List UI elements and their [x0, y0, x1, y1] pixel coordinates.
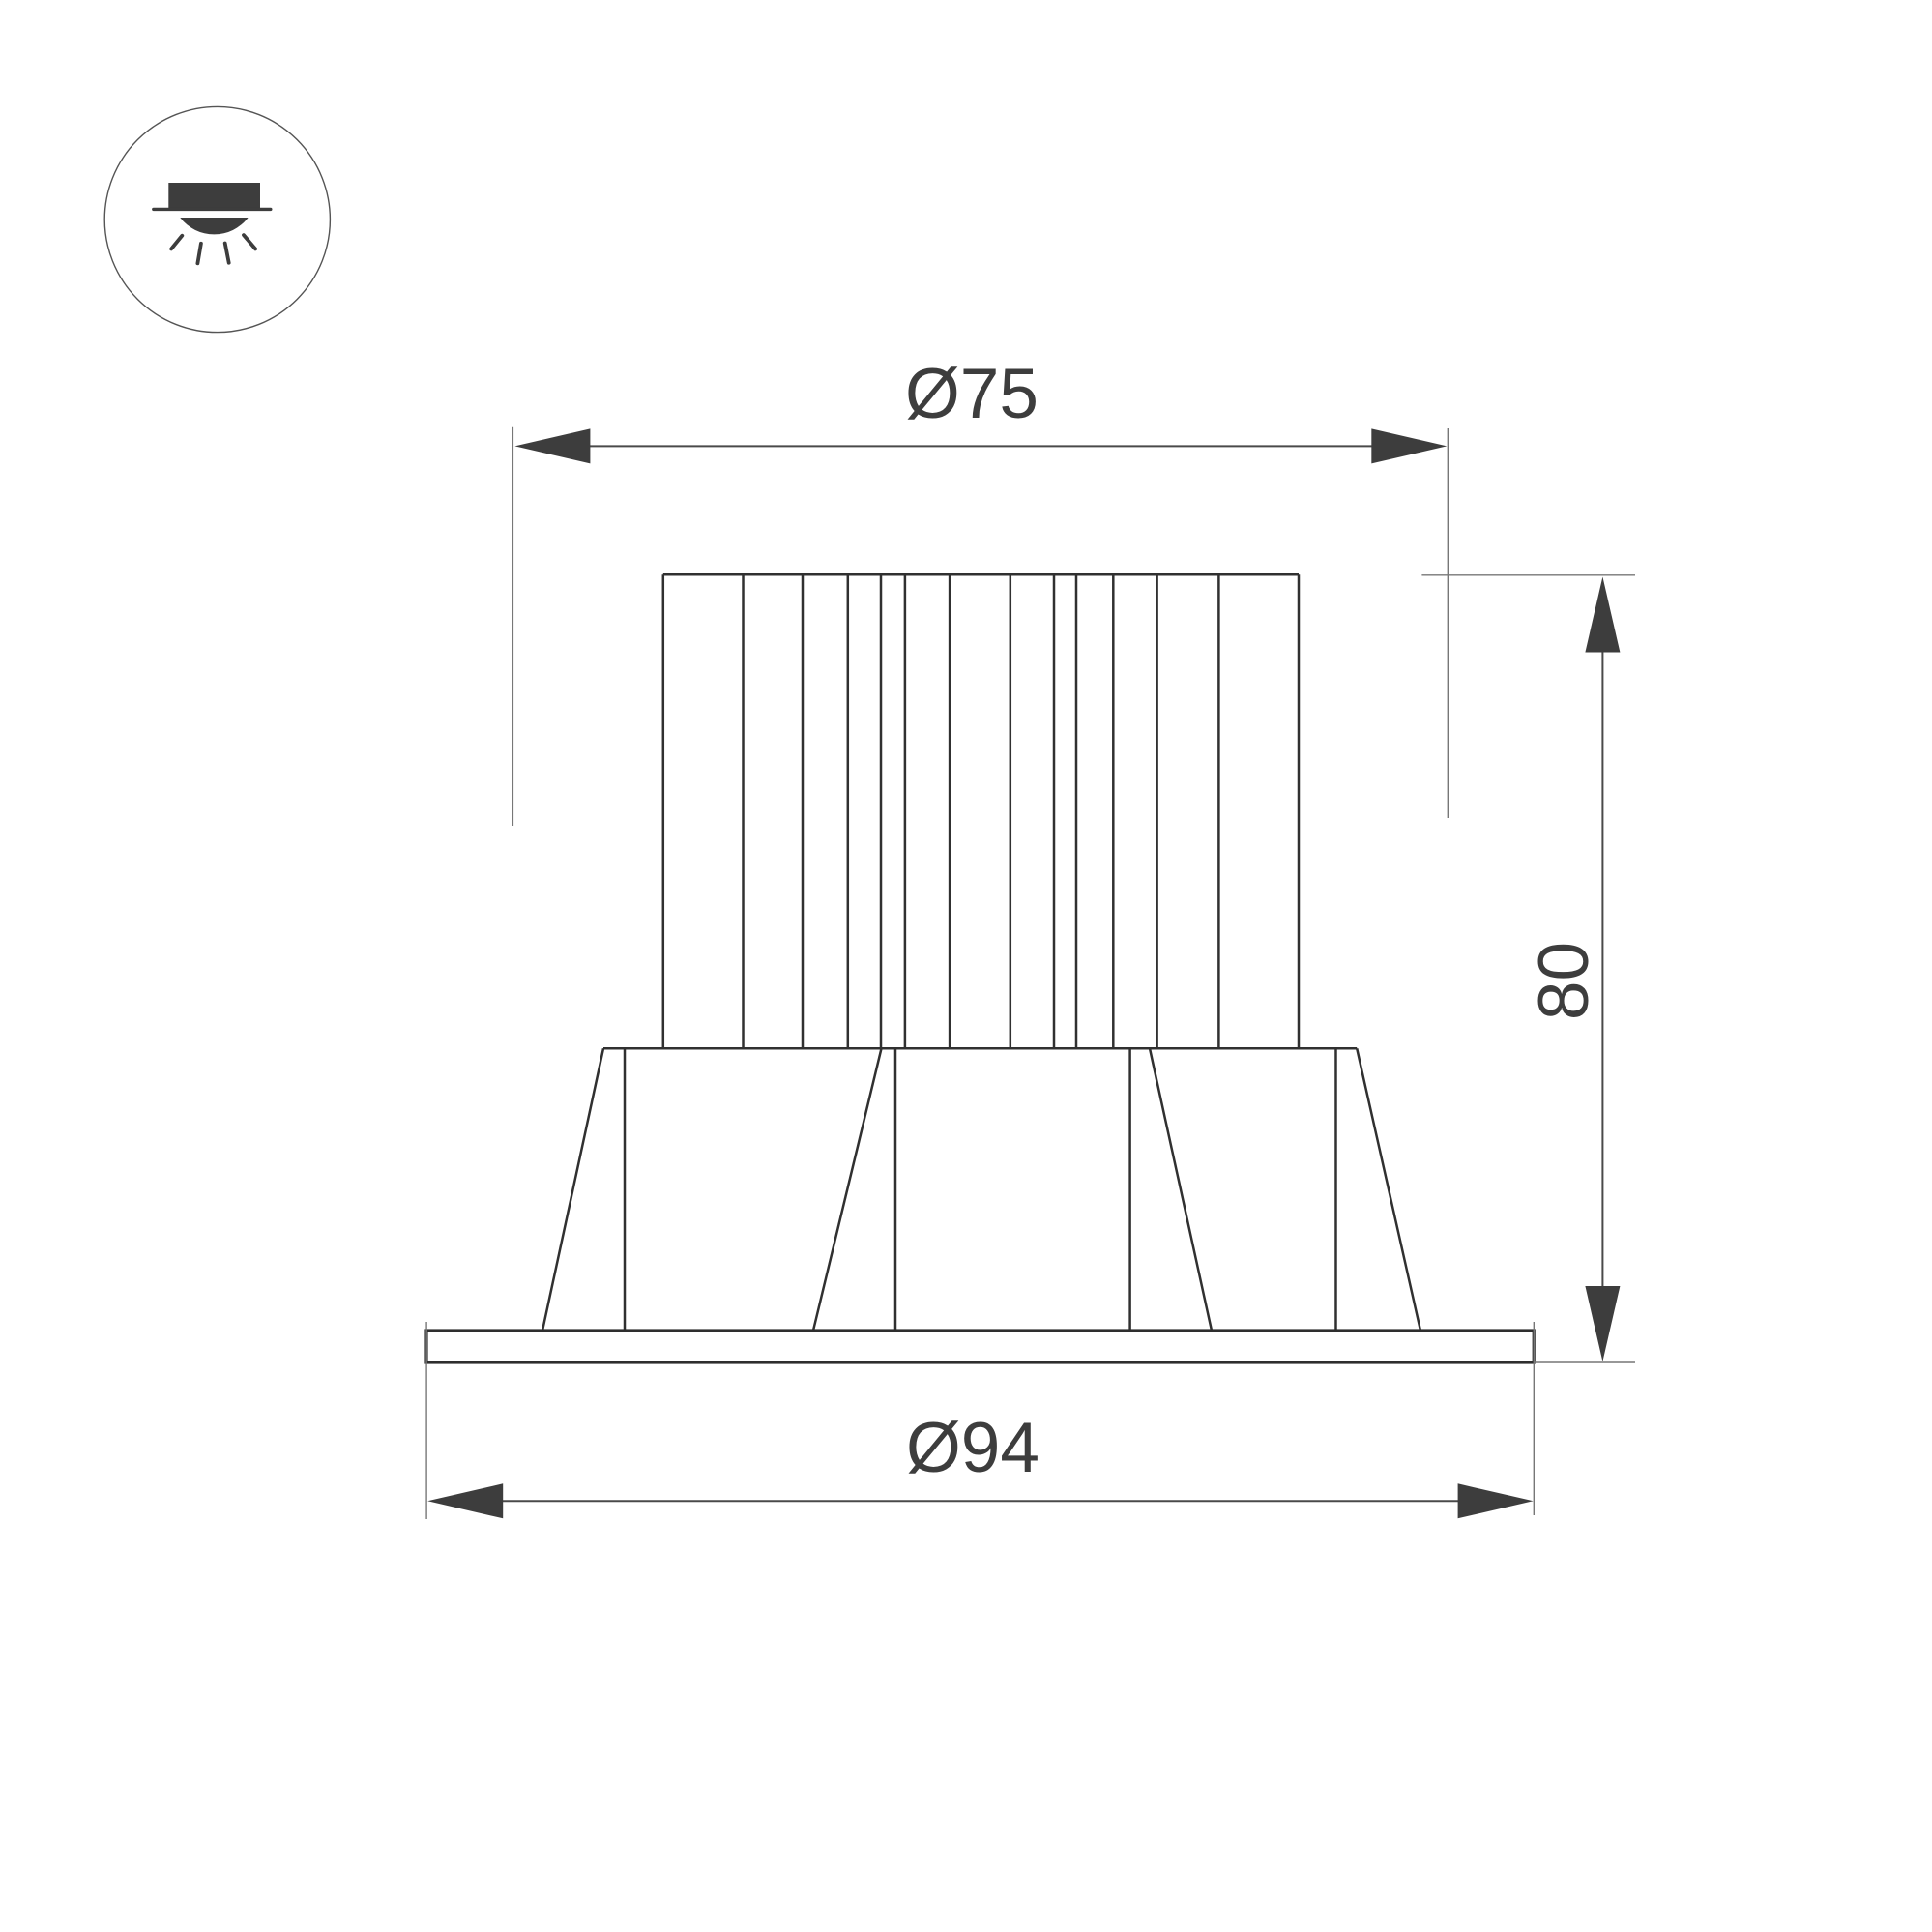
svg-text:Ø75: Ø75	[905, 355, 1039, 433]
svg-text:Ø94: Ø94	[906, 1409, 1039, 1487]
svg-text:80: 80	[1525, 942, 1603, 1020]
